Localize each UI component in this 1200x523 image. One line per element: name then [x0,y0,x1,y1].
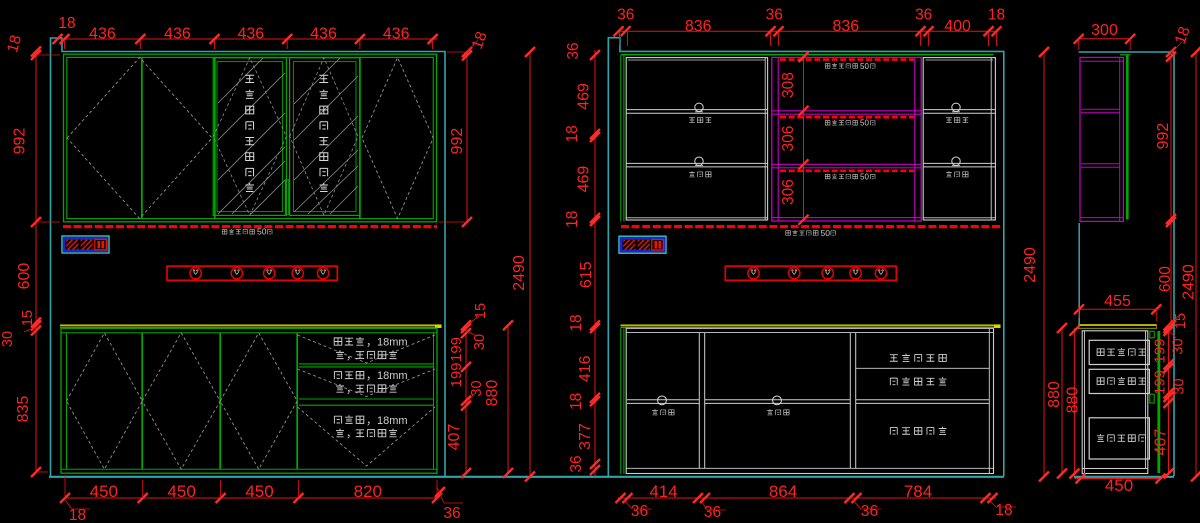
svg-text:300: 300 [1091,22,1118,39]
svg-text:436: 436 [164,25,191,42]
svg-text:784: 784 [904,482,932,501]
svg-text:199: 199 [1152,370,1169,395]
svg-text:30: 30 [1172,378,1188,394]
svg-text:36: 36 [861,503,878,520]
svg-text:50: 50 [860,172,869,181]
svg-text:199: 199 [1152,338,1169,363]
svg-text:30: 30 [0,331,16,347]
svg-text:36: 36 [704,504,721,521]
svg-text:30: 30 [1171,338,1187,354]
svg-text:50: 50 [821,228,831,238]
svg-text:450: 450 [1105,476,1133,495]
svg-text:880: 880 [1065,387,1082,414]
svg-text:15: 15 [1173,313,1189,329]
svg-text:30: 30 [469,380,485,396]
svg-text:436: 436 [89,25,116,42]
svg-text:50: 50 [257,227,267,237]
svg-text:18: 18 [564,211,581,228]
svg-text:2490: 2490 [1022,247,1039,283]
svg-text:377: 377 [577,423,594,450]
svg-text:407: 407 [446,424,463,451]
svg-text:836: 836 [685,18,712,35]
svg-text:992: 992 [1155,123,1172,150]
svg-text:15: 15 [473,303,489,319]
svg-text:450: 450 [90,482,118,501]
svg-text:450: 450 [167,482,195,501]
svg-text:18: 18 [564,125,581,142]
svg-text:600: 600 [16,263,33,290]
svg-text:880: 880 [1046,381,1063,408]
svg-text:880: 880 [484,380,501,407]
svg-text:50: 50 [860,62,869,71]
svg-text:18: 18 [568,314,585,331]
svg-text:820: 820 [354,482,382,501]
svg-text:835: 835 [15,396,32,423]
svg-text:30: 30 [472,334,488,350]
svg-text:416: 416 [577,355,594,382]
svg-text:836: 836 [832,18,859,35]
svg-text:，18mm: ，18mm [366,370,408,382]
svg-text:864: 864 [769,482,797,501]
svg-text:36: 36 [617,7,634,24]
svg-text:308: 308 [780,72,797,98]
svg-text:469: 469 [575,83,592,110]
svg-text:306: 306 [780,126,797,152]
svg-text:615: 615 [578,261,595,288]
svg-text:，18mm: ，18mm [366,337,408,349]
svg-text:455: 455 [1104,293,1131,310]
svg-text:436: 436 [383,25,410,42]
svg-text:2490: 2490 [511,255,528,291]
svg-text:18: 18 [988,7,1005,24]
svg-text:306: 306 [780,179,797,205]
svg-text:436: 436 [237,25,264,42]
svg-text:199: 199 [448,362,465,387]
svg-text:，: ， [346,428,357,440]
svg-text:407: 407 [1153,429,1170,456]
svg-text:992: 992 [12,128,29,155]
svg-text:414: 414 [649,482,677,501]
svg-text:，18mm: ，18mm [366,415,408,427]
svg-text:18: 18 [568,393,585,410]
svg-text:36: 36 [443,505,460,522]
svg-text:36: 36 [915,7,932,24]
svg-text:50: 50 [860,119,869,128]
svg-text:，: ， [346,384,357,396]
svg-text:2490: 2490 [1181,264,1198,300]
svg-text:992: 992 [449,128,466,155]
svg-text:36: 36 [565,42,582,59]
svg-text:450: 450 [245,482,273,501]
svg-text:469: 469 [575,166,592,193]
svg-text:15: 15 [20,310,36,326]
svg-text:18: 18 [995,502,1012,519]
svg-text:36: 36 [568,455,585,472]
svg-text:436: 436 [310,25,337,42]
svg-text:36: 36 [766,7,783,24]
svg-text:，: ， [346,350,357,362]
svg-text:18: 18 [58,15,75,32]
svg-text:36: 36 [631,503,648,520]
svg-text:400: 400 [944,18,971,35]
svg-text:199: 199 [448,337,465,362]
